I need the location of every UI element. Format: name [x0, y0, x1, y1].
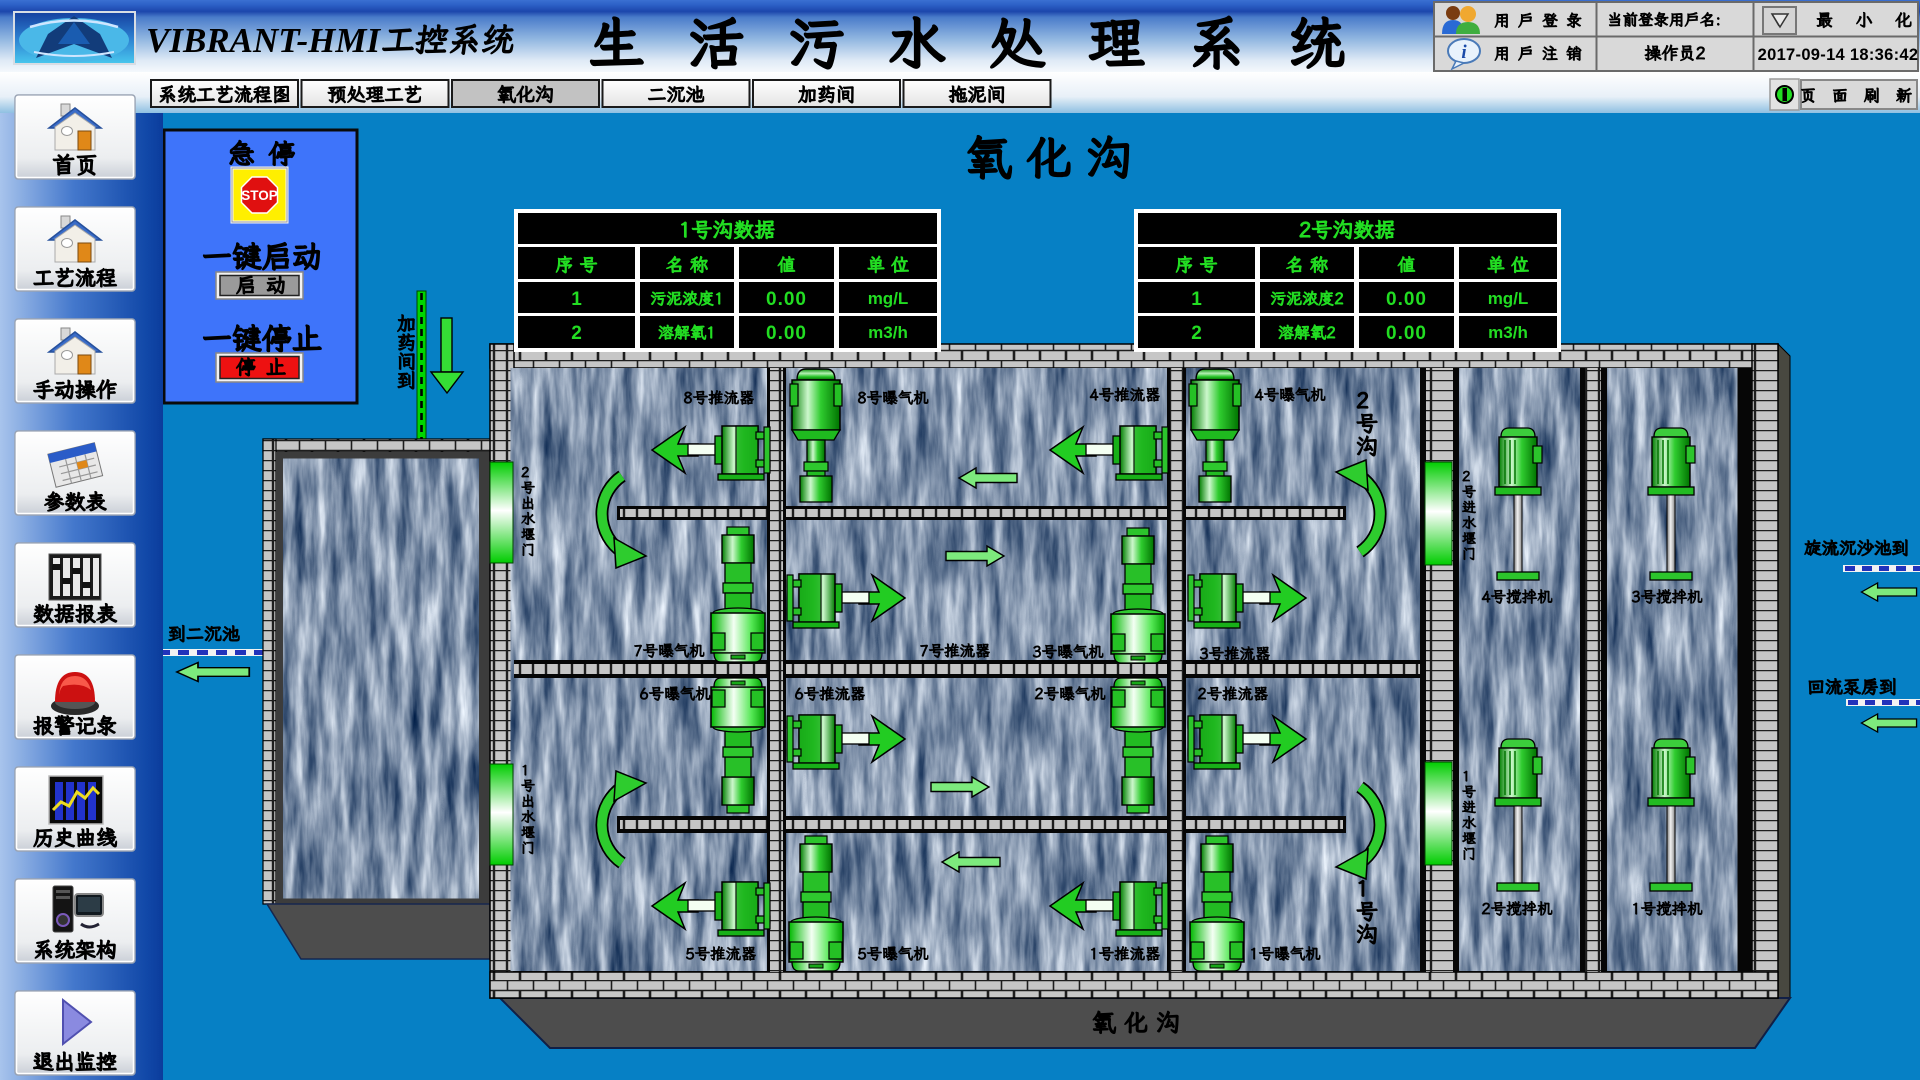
svg-text:VIBRANT-HMI: VIBRANT-HMI: [146, 21, 381, 60]
svg-text:mg/L: mg/L: [1488, 289, 1529, 308]
svg-text:0.00: 0.00: [766, 323, 807, 344]
svg-text:1: 1: [1191, 289, 1202, 310]
svg-text:0.00: 0.00: [766, 289, 807, 310]
svg-text:m3/h: m3/h: [868, 323, 908, 342]
svg-text:0.00: 0.00: [1386, 289, 1427, 310]
svg-text:2017-09-14 18:36:42: 2017-09-14 18:36:42: [1758, 46, 1919, 64]
svg-text:STOP: STOP: [241, 188, 278, 203]
svg-text:1: 1: [571, 289, 582, 310]
svg-text:2: 2: [571, 323, 582, 344]
svg-text:m3/h: m3/h: [1488, 323, 1528, 342]
svg-text:mg/L: mg/L: [868, 289, 909, 308]
svg-text:i: i: [1461, 42, 1467, 63]
svg-text:2: 2: [1191, 323, 1202, 344]
svg-text:0.00: 0.00: [1386, 323, 1427, 344]
